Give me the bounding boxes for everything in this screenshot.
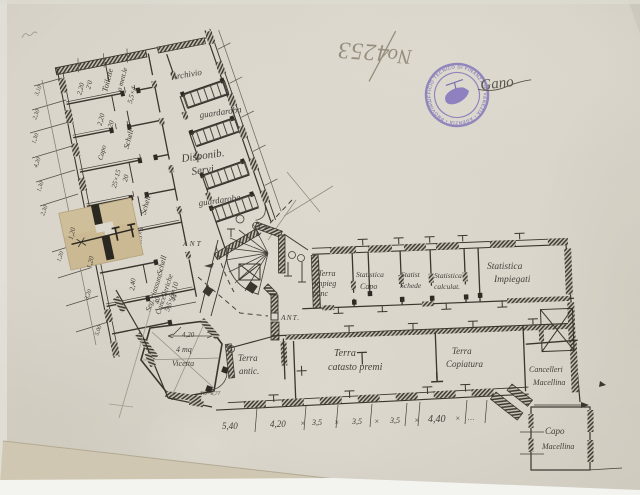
svg-text:…: … <box>468 414 474 422</box>
svg-text:antic.: antic. <box>239 366 259 376</box>
svg-text:4253: 4253 <box>336 36 390 66</box>
svg-text:Terra: Terra <box>452 346 472 356</box>
svg-text:Statist: Statist <box>401 270 421 279</box>
svg-text:2,40: 2,40 <box>128 277 137 291</box>
svg-text:Capo: Capo <box>545 426 565 436</box>
svg-text:ANT.: ANT. <box>280 313 300 322</box>
svg-text:×: × <box>455 414 460 423</box>
svg-text:Capo: Capo <box>360 282 377 291</box>
svg-text:4,40: 4,40 <box>428 414 446 425</box>
svg-text:×: × <box>374 417 379 426</box>
svg-text:conc: conc <box>313 289 329 298</box>
svg-text:3,5: 3,5 <box>389 416 400 425</box>
svg-text:4 mq: 4 mq <box>176 345 192 354</box>
svg-text:Schede: Schede <box>400 281 422 290</box>
svg-text:ANT: ANT <box>182 239 203 248</box>
svg-text:3,5: 3,5 <box>311 418 322 427</box>
svg-text:catasto premi: catasto premi <box>328 362 383 373</box>
svg-text:calculat.: calculat. <box>434 282 460 291</box>
svg-text:Impiegati: Impiegati <box>493 275 531 285</box>
svg-text:Copiatura: Copiatura <box>446 359 484 369</box>
svg-text:Terra: Terra <box>238 353 258 363</box>
svg-text:Terra: Terra <box>318 269 336 278</box>
svg-text:4,20: 4,20 <box>182 331 195 339</box>
svg-text:Macellina: Macellina <box>541 442 574 451</box>
svg-text:Statistica: Statistica <box>434 271 462 280</box>
svg-text:No: No <box>387 44 414 70</box>
svg-text:Vicetta: Vicetta <box>172 359 194 368</box>
svg-text:3,5: 3,5 <box>351 417 362 426</box>
svg-text:Cancelleri: Cancelleri <box>529 365 563 374</box>
svg-text:Statistica: Statistica <box>487 262 523 272</box>
svg-text:4,20: 4,20 <box>270 419 286 429</box>
svg-text:Terra: Terra <box>334 348 356 359</box>
svg-text:Statistica: Statistica <box>356 270 384 279</box>
svg-text:Macellina: Macellina <box>532 378 565 387</box>
svg-text:5,40: 5,40 <box>222 421 238 431</box>
svg-text:Impieg: Impieg <box>313 279 336 288</box>
